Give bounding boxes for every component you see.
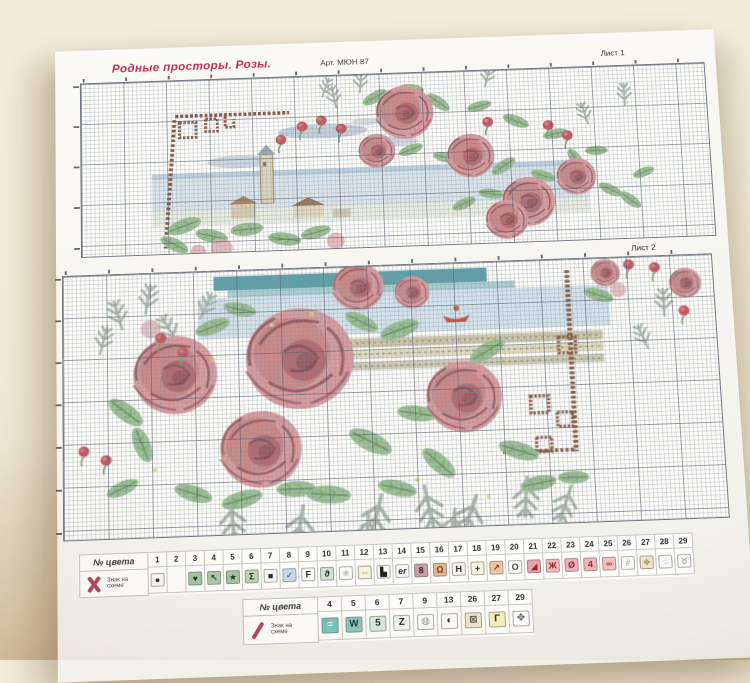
legend-symbol-cell: Σ xyxy=(243,563,262,590)
legend-symbol-cell: ⊠ xyxy=(461,606,486,635)
legend-symbol-cell: ↗ xyxy=(487,555,507,582)
legend-symbol: + xyxy=(470,561,485,576)
legend-symbol-cell: H xyxy=(449,556,469,583)
legend-symbol-cell: ★ xyxy=(224,564,243,591)
legend-color-number: 27 xyxy=(636,534,656,550)
legend-symbol-cell: ■ xyxy=(261,563,280,590)
legend-symbol: 4 xyxy=(583,557,598,572)
legend-color-number: 24 xyxy=(580,536,600,552)
legend-symbol-cell xyxy=(167,566,186,593)
article-number: Арт. МЮН 87 xyxy=(320,57,369,67)
legend-color-number: 21 xyxy=(524,538,544,554)
legend-color-number: 26 xyxy=(617,535,637,551)
legend-symbol-cell: ◐ xyxy=(438,607,463,636)
legend-full-cross: № цвета Знак на схеме 123456789101112131… xyxy=(79,533,695,599)
legend-symbol-cell: ✓ xyxy=(280,562,300,589)
legend-symbol: Z xyxy=(393,614,410,631)
legend-symbol: ✓ xyxy=(282,568,297,583)
legend-symbol: ⊠ xyxy=(465,612,482,629)
legend-symbol-cell: 4 xyxy=(581,551,601,578)
legend-color-number: 9 xyxy=(413,592,437,608)
legend-color-number: 2 xyxy=(167,551,186,567)
legend-symbol: ◍ xyxy=(417,614,434,631)
legend-symbol-cell: Z xyxy=(390,609,415,638)
legend-symbol-cell: ▙ xyxy=(374,559,394,586)
legend-symbol: O xyxy=(508,560,523,575)
legend-marker-row: Знак на схеме xyxy=(79,569,149,598)
full-cross-marker-icon xyxy=(85,575,102,594)
legend-columns: 1234567891011121314151617181920212223242… xyxy=(148,533,695,594)
legend-symbol-cell: Ω xyxy=(431,557,451,584)
legend-symbol-cell: ϑ xyxy=(318,561,338,588)
legend-symbol: Σ xyxy=(244,569,259,584)
legend-symbol: H xyxy=(451,562,466,577)
chart-sheet-2 xyxy=(62,253,730,541)
legend-symbol: ✥ xyxy=(513,610,530,627)
tower-motif xyxy=(260,154,274,203)
legend-symbol-cell: Γ xyxy=(485,605,510,634)
legend-color-number: 22 xyxy=(542,537,562,553)
legend-color-number: 9 xyxy=(299,546,318,562)
sheet1-label: Лист 1 xyxy=(600,48,625,58)
legend-color-number: 7 xyxy=(389,593,413,609)
legend-color-number: 18 xyxy=(467,540,486,556)
legend-color-number: 6 xyxy=(242,548,261,564)
legend-symbol-cell: ∞ xyxy=(600,551,620,578)
legend-color-number: 13 xyxy=(374,543,393,559)
legend-symbol: ◢ xyxy=(526,559,541,574)
legend-color-number: 29 xyxy=(674,533,694,549)
legend-symbol: ▙ xyxy=(376,564,391,579)
legend-symbol: Ω xyxy=(433,562,448,577)
legend-symbol-cell: ❀ xyxy=(337,560,357,587)
legend-color-number: 4 xyxy=(318,596,342,612)
legend-color-number: 13 xyxy=(437,591,461,607)
legend-symbol: ↖ xyxy=(207,571,222,586)
legend-color-number: 29 xyxy=(508,589,533,605)
legend-marker-row: Знак на схеме xyxy=(243,614,319,645)
legend-symbol: ♥ xyxy=(188,571,203,586)
legend-color-number: 7 xyxy=(261,547,280,563)
legend-color-number: 19 xyxy=(486,539,505,555)
legend-color-number: 4 xyxy=(205,549,224,565)
legend-symbol: ⇔ xyxy=(357,565,372,580)
chart1-artwork xyxy=(81,63,716,257)
legend-symbol-cell: = xyxy=(318,611,343,640)
legend-symbol-cell: ↖ xyxy=(205,565,224,592)
legend-symbol-cell: ◢ xyxy=(524,553,544,580)
legend-color-number: 23 xyxy=(561,537,581,553)
legend-color-number: 10 xyxy=(317,545,336,561)
legend-label-column: № цвета Знак на схеме xyxy=(242,597,319,646)
legend-color-number: 3 xyxy=(186,550,205,566)
legend-color-number: 27 xyxy=(485,590,510,606)
legend-color-number: 16 xyxy=(430,541,449,557)
legend-color-number: 25 xyxy=(599,535,619,551)
legend-symbol-cell: ❖ xyxy=(637,549,657,576)
legend-color-number: 8 xyxy=(280,547,299,563)
legend-color-number: 5 xyxy=(223,549,242,565)
legend-color-number: 26 xyxy=(461,591,485,607)
legend-symbol-cell: ♥ xyxy=(186,566,205,593)
legend-symbol-cell: ♧ xyxy=(656,549,676,576)
legend-symbol: ↗ xyxy=(489,560,504,575)
legend-symbol-cell: Ø xyxy=(562,552,582,579)
legend-symbol: Γ xyxy=(489,611,506,628)
legend-color-number: 28 xyxy=(655,533,675,549)
legend-symbol-cell: ♉ xyxy=(675,548,695,575)
legend-columns: 4567913262729 =W5Z◍◐⊠Γ✥ xyxy=(318,589,534,641)
legend-symbol: = xyxy=(322,617,339,634)
legend-symbol-cell: ✥ xyxy=(509,604,534,633)
legend-color-number: 11 xyxy=(336,545,355,561)
legend-symbol-cell: F xyxy=(299,561,319,588)
legend-symbol-cell: ● xyxy=(149,567,168,594)
legend-symbol: ❖ xyxy=(639,555,654,570)
legend-symbol: ● xyxy=(150,573,165,588)
legend-symbol: 5 xyxy=(369,615,386,632)
legend-symbol-cell: O xyxy=(506,554,526,581)
legend-row-header: Знак на схеме xyxy=(107,576,137,590)
chart-sheet-1 xyxy=(80,62,717,258)
legend-symbol-cell: Ж xyxy=(543,553,563,580)
legend-color-number: 17 xyxy=(449,541,468,557)
legend-symbol-cell: ◍ xyxy=(414,608,439,637)
legend-symbol: ∞ xyxy=(602,556,617,571)
legend-symbol: ★ xyxy=(226,570,241,585)
legend-symbol-cell: 8 xyxy=(412,557,432,584)
legend-symbol: Ø xyxy=(564,558,579,573)
legend-symbol-cell: er xyxy=(393,558,413,585)
legend-half-stitch: № цвета Знак на схеме 4567913262729 =W5Z… xyxy=(242,589,534,646)
legend-symbol: er xyxy=(395,564,410,579)
legend-color-number: 6 xyxy=(365,594,389,610)
legend-color-number: 20 xyxy=(505,539,524,555)
pattern-sheet-paper: Родные просторы. Розы. Арт. МЮН 87 Лист … xyxy=(55,29,750,682)
legend-symbol: ♧ xyxy=(658,554,673,569)
legend-row-header: Знак на схеме xyxy=(271,622,301,636)
legend-symbol: F xyxy=(301,567,316,582)
photo-scene: Родные просторы. Розы. Арт. МЮН 87 Лист … xyxy=(0,0,750,660)
legend-color-number: 14 xyxy=(392,543,411,559)
legend-symbol: 8 xyxy=(414,563,429,578)
legend-symbol: ■ xyxy=(263,568,278,583)
legend-symbol-cell: W xyxy=(342,610,367,639)
legend-symbol: ♉ xyxy=(677,554,692,569)
legend-color-number: 1 xyxy=(148,551,167,567)
legend-color-number: 5 xyxy=(342,595,366,611)
legend-symbol: ❀ xyxy=(339,566,354,581)
legend-symbol: W xyxy=(346,616,363,633)
legend-symbol-cell: ⇔ xyxy=(355,559,375,586)
legend-symbol: ϑ xyxy=(320,566,335,581)
legend-symbol-cell: # xyxy=(618,550,638,577)
legend-label-column: № цвета Знак на схеме xyxy=(79,552,149,598)
legend-symbol: # xyxy=(620,556,635,571)
legend-symbol-cell: 5 xyxy=(366,610,391,639)
ruler-ticks-left xyxy=(55,279,62,539)
legend-color-number: 15 xyxy=(411,542,430,558)
legend-symbol-cell: + xyxy=(468,555,488,582)
chart2-artwork xyxy=(63,254,729,540)
half-stitch-marker-icon xyxy=(249,620,266,639)
legend-color-number: 12 xyxy=(355,544,374,560)
legend-symbol: ◐ xyxy=(441,613,458,630)
legend-symbol: Ж xyxy=(545,558,560,573)
ruler-ticks-left xyxy=(73,86,80,255)
